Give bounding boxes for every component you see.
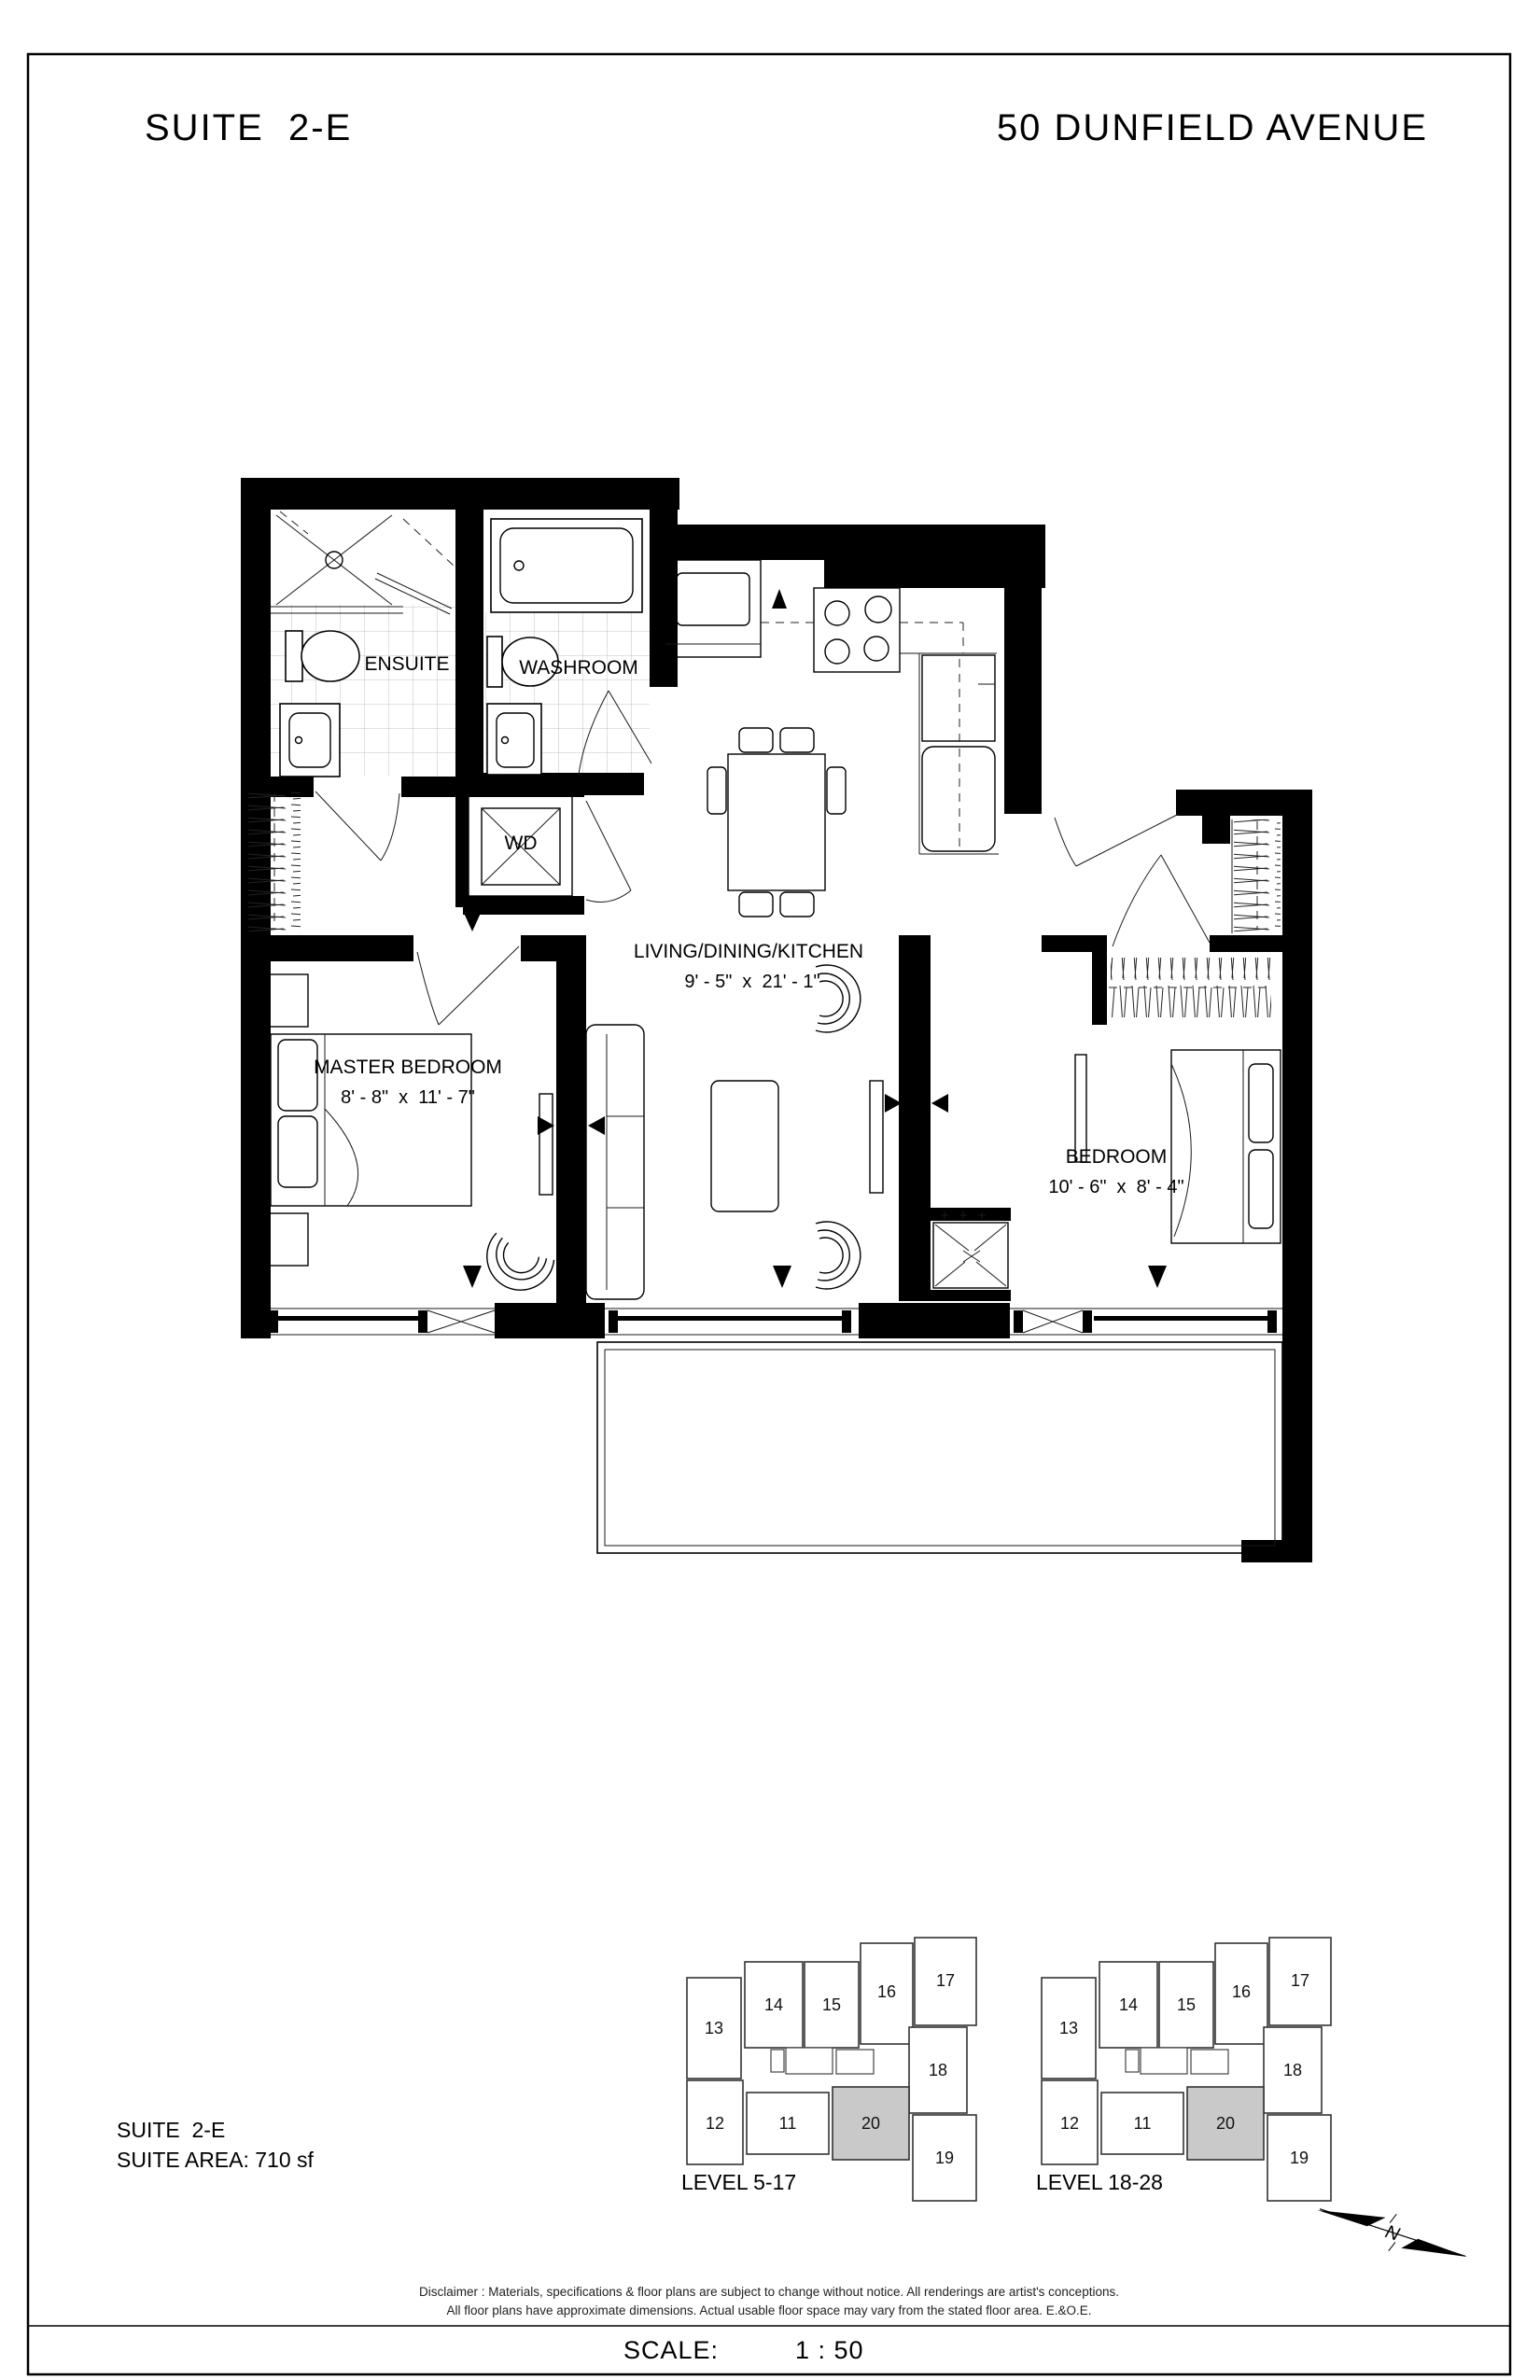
bedroom-door-leaf: [1161, 855, 1210, 943]
foyer: [1055, 814, 1281, 933]
unit-13: 13: [1059, 2019, 1078, 2037]
dining-chair: [780, 728, 814, 752]
bedroom-dims: 10' - 6" x 8' - 4": [1048, 1177, 1183, 1197]
stove-icon: [814, 588, 900, 672]
armchair-icon: [816, 1222, 861, 1289]
address-title: 50 DUNFIELD AVENUE: [997, 107, 1428, 148]
bathtub-icon: [491, 519, 642, 612]
dining-set: [707, 728, 846, 917]
sink-icon: [487, 704, 541, 775]
dining-chair: [780, 892, 814, 917]
bedroom-label: BEDROOM: [1066, 1146, 1168, 1168]
dining-chair: [827, 767, 846, 814]
shower-icon: [276, 515, 392, 605]
living-label: LIVING/DINING/KITCHEN: [634, 941, 863, 962]
unit-15: 15: [1177, 1995, 1196, 2014]
unit-18: 18: [1283, 2061, 1302, 2079]
unit-12: 12: [706, 2114, 724, 2133]
unit-14: 14: [764, 1995, 783, 2014]
balcony: [597, 1342, 1282, 1553]
north-label: N: [1382, 2221, 1402, 2246]
entry-door-swing: [1055, 818, 1076, 866]
unit-18: 18: [929, 2061, 947, 2079]
floorplan-sheet: SUITE 2-E 50 DUNFIELD AVENUE: [0, 0, 1540, 2380]
tv-console: [539, 1094, 553, 1195]
dining-chair: [739, 892, 773, 917]
windows: [269, 1309, 1282, 1335]
keyplan-level-18-28: 13 14 15 16 17 18 12 11 20 19 LEVEL 18-2…: [1036, 1938, 1331, 2201]
unit-14: 14: [1119, 1995, 1138, 2014]
keyplan-level-18-28-label: LEVEL 18-28: [1036, 2170, 1163, 2194]
dining-table: [728, 754, 825, 890]
ensuite-door-leaf: [315, 791, 381, 861]
unit-19: 19: [935, 2149, 954, 2167]
kitchen-fixtures: [665, 560, 999, 854]
wd-door-leaf: [586, 801, 631, 890]
sheet-drawing: SUITE 2-E 50 DUNFIELD AVENUE: [0, 0, 1540, 2380]
suite-name-label: SUITE 2-E: [117, 2118, 225, 2142]
upper-cabinet-dash: [761, 623, 963, 653]
tv-console: [870, 1081, 883, 1193]
unit-15: 15: [822, 1995, 841, 2014]
disclaimer-line-2: All floor plans have approximate dimensi…: [446, 2303, 1091, 2317]
armchair-icon: [816, 965, 861, 1032]
ensuite-label: ENSUITE: [364, 653, 449, 675]
kitchen-counter: [900, 653, 999, 854]
scale-label: SCALE:: [623, 2336, 719, 2364]
unit-20: 20: [1216, 2114, 1235, 2133]
unit-20: 20: [861, 2114, 880, 2133]
mechanical-closet: [933, 1211, 1008, 1288]
living-dims: 9' - 5" x 21' - 1": [684, 972, 819, 992]
unit-17: 17: [1291, 1971, 1309, 1990]
wd-label: WD: [505, 833, 538, 854]
coffee-table: [711, 1081, 778, 1211]
unit-16: 16: [1232, 1982, 1251, 2001]
master-bedroom-dims: 8' - 8" x 11' - 7": [341, 1087, 475, 1108]
bedroom-door-swing: [1113, 855, 1161, 946]
bed-icon: [1171, 1050, 1281, 1243]
sofa-icon: [586, 1025, 644, 1299]
unit-13: 13: [705, 2019, 723, 2037]
unit-12: 12: [1060, 2114, 1079, 2133]
keyplan-level-5-17-label: LEVEL 5-17: [681, 2170, 796, 2194]
master-bedroom-label: MASTER BEDROOM: [314, 1057, 502, 1078]
master-door-swing: [417, 952, 439, 1025]
master-door-leaf: [439, 946, 519, 1025]
page-title: SUITE 2-E: [145, 107, 352, 148]
toilet-icon: [286, 631, 359, 681]
dining-chair: [707, 767, 726, 814]
disclaimer-line-1: Disclaimer : Materials, specifications &…: [419, 2285, 1119, 2299]
north-arrow-icon: N: [1312, 2191, 1473, 2275]
wd-door-swing: [586, 890, 631, 902]
balcony-door-bedroom-icon: [1023, 1310, 1083, 1333]
master-bedroom-furniture: [248, 791, 553, 1266]
dining-chair: [739, 728, 773, 752]
unit-11: 11: [779, 2114, 797, 2133]
unit-17: 17: [936, 1971, 955, 1990]
living-furniture: [476, 965, 883, 1301]
keyplan-level-5-17: 13 14 15 16 17 18 12 11 20 19 LEVEL 5-17: [681, 1938, 976, 2201]
balcony-door-master-icon: [427, 1310, 495, 1333]
nightstand: [269, 1213, 308, 1266]
scale-value: 1 : 50: [795, 2336, 864, 2364]
marker-triangle-kitchen: [772, 589, 787, 609]
unit-19: 19: [1290, 2149, 1309, 2167]
washroom-label: WASHROOM: [519, 657, 638, 679]
floor-plan: ENSUITE WASHROOM WD LIVING/DINING/KITCHE…: [241, 478, 1312, 1562]
kitchen-sink-icon: [665, 560, 761, 657]
unit-16: 16: [877, 1982, 896, 2001]
suite-area-label: SUITE AREA: 710 sf: [117, 2148, 315, 2172]
nightstand: [269, 974, 308, 1027]
unit-11: 11: [1134, 2114, 1152, 2133]
wd-closet: [469, 795, 631, 902]
armchair-icon: [476, 1232, 555, 1301]
ensuite-door-swing: [381, 793, 399, 861]
sink-icon: [280, 704, 340, 777]
window-posts: [269, 1310, 1277, 1333]
